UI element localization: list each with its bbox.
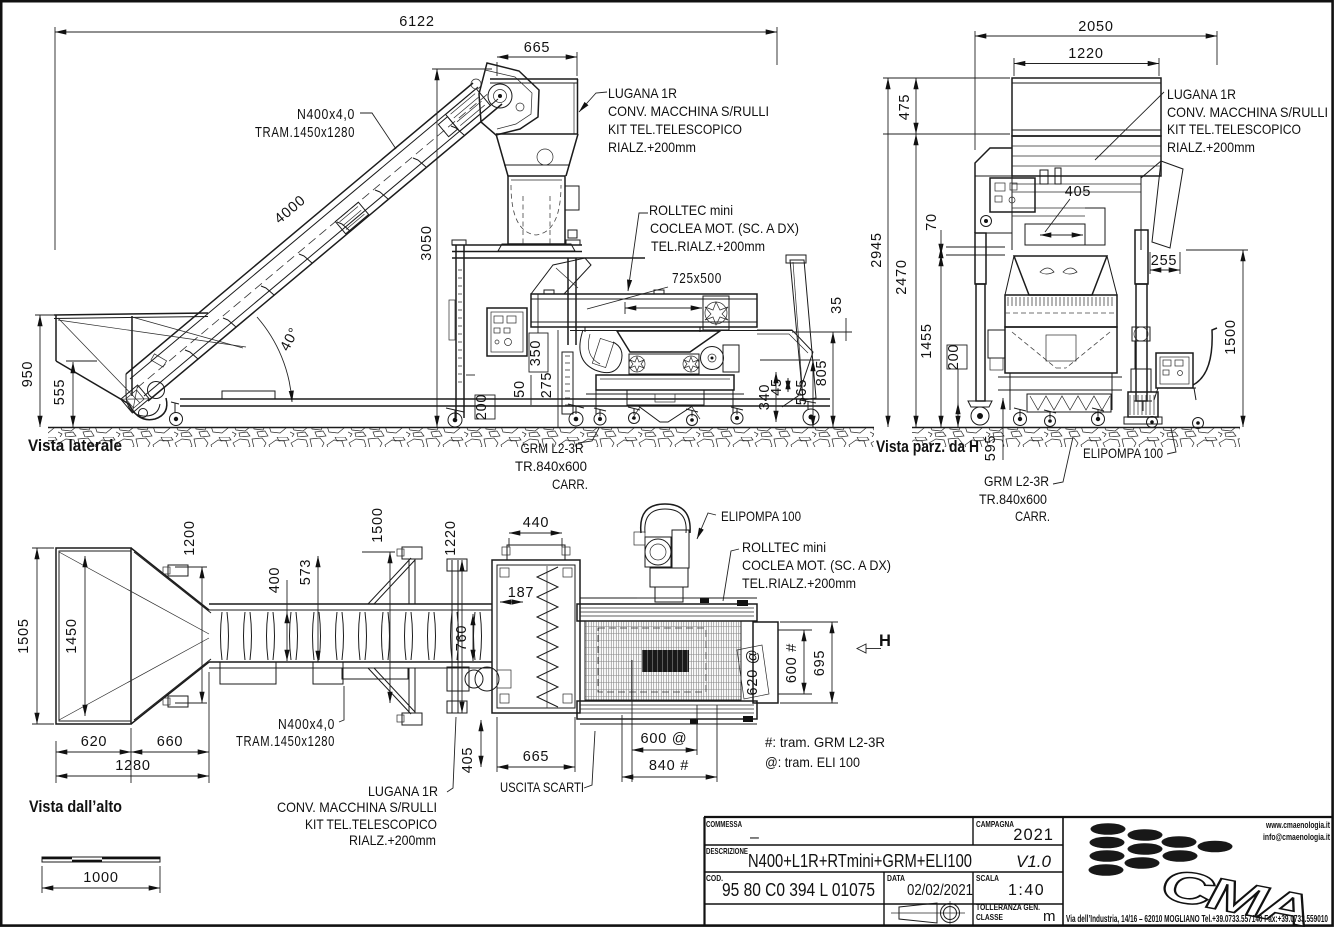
svg-text:RIALZ.+200mm: RIALZ.+200mm [349,832,436,848]
svg-text:TRAM.1450x1280: TRAM.1450x1280 [236,734,335,750]
svg-text:45: 45 [769,378,785,396]
svg-text:Vista parz. da H: Vista parz. da H [876,438,979,456]
svg-text:02/02/2021: 02/02/2021 [907,882,973,899]
svg-text:N400x4,0: N400x4,0 [278,717,335,733]
svg-text:620 @: 620 @ [745,649,761,696]
svg-text:200: 200 [946,344,962,371]
svg-text:187: 187 [508,585,535,601]
svg-text:TEL.RIALZ.+200mm: TEL.RIALZ.+200mm [651,238,765,254]
svg-text:info@cmaenologia.it: info@cmaenologia.it [1263,832,1330,842]
svg-text:KIT TEL.TELESCOPICO: KIT TEL.TELESCOPICO [608,121,742,137]
svg-text:COD.: COD. [706,873,723,883]
svg-text:665: 665 [524,40,551,56]
svg-text:V1.0: V1.0 [1016,852,1052,871]
svg-text:GRM L2-3R: GRM L2-3R [521,440,584,456]
svg-text:600 @: 600 @ [641,731,688,747]
svg-text:COCLEA MOT. (SC. A DX): COCLEA MOT. (SC. A DX) [742,557,891,573]
svg-text:TR.840x600: TR.840x600 [515,458,587,474]
svg-text:TOLLERANZA GEN.: TOLLERANZA GEN. [976,902,1040,912]
svg-text:660: 660 [157,734,184,750]
svg-text:35: 35 [829,296,845,314]
svg-text:2050: 2050 [1078,19,1113,35]
svg-text:N400+L1R+RTmini+GRM+ELI100: N400+L1R+RTmini+GRM+ELI100 [748,850,972,871]
svg-text:DATA: DATA [887,873,905,883]
svg-text:TR.840x600: TR.840x600 [979,491,1047,507]
svg-text:Via dell’Industria, 14/16 – 62: Via dell’Industria, 14/16 – 62010 MOGLIA… [1066,914,1328,925]
svg-text:RIALZ.+200mm: RIALZ.+200mm [1167,139,1255,155]
svg-text:200: 200 [474,394,490,421]
svg-text:760: 760 [454,625,470,652]
svg-text:6122: 6122 [399,14,434,30]
svg-text:950: 950 [20,361,36,388]
svg-text:3050: 3050 [419,225,435,260]
svg-text:275: 275 [539,372,555,399]
svg-text:805: 805 [814,360,830,387]
svg-text:TEL.RIALZ.+200mm: TEL.RIALZ.+200mm [742,575,856,591]
svg-text:LUGANA 1R: LUGANA 1R [1167,86,1236,102]
svg-text:CONV. MACCHINA S/RULLI: CONV. MACCHINA S/RULLI [1167,104,1328,120]
svg-text:KIT TEL.TELESCOPICO: KIT TEL.TELESCOPICO [1167,121,1301,137]
svg-text:ROLLTEC mini: ROLLTEC mini [742,539,826,555]
svg-text:1:40: 1:40 [1008,882,1045,899]
svg-text:725x500: 725x500 [672,271,722,287]
svg-text:595: 595 [983,435,999,462]
svg-text:2021: 2021 [1013,826,1054,844]
svg-text:600 #: 600 # [784,643,800,683]
svg-text:@: tram. ELI 100: @: tram. ELI 100 [765,754,860,770]
svg-text:#: tram. GRM L2-3R: #: tram. GRM L2-3R [765,734,885,750]
svg-text:Vista laterale: Vista laterale [28,437,122,455]
svg-text:ROLLTEC mini: ROLLTEC mini [649,202,733,218]
svg-text:405: 405 [1065,184,1092,200]
svg-text:95 80 C0 394 L 01075: 95 80 C0 394 L 01075 [722,880,875,900]
svg-text:840 #: 840 # [649,758,689,774]
svg-text:440: 440 [523,515,550,531]
svg-text:475: 475 [897,94,913,121]
svg-text:DESCRIZIONE: DESCRIZIONE [706,846,748,856]
svg-text:1450: 1450 [64,618,80,653]
svg-text:1280: 1280 [115,758,150,774]
svg-text:CLASSE: CLASSE [976,912,1003,922]
svg-text:573: 573 [298,559,314,586]
svg-text:555: 555 [52,379,68,406]
svg-text:m: m [1043,908,1056,925]
svg-text:1505: 1505 [16,618,32,653]
svg-text:350: 350 [528,340,544,367]
svg-text:50: 50 [512,380,528,398]
svg-text:CONV. MACCHINA S/RULLI: CONV. MACCHINA S/RULLI [277,799,437,815]
svg-text:1455: 1455 [919,323,935,358]
svg-text:255: 255 [1151,253,1178,269]
svg-text:1220: 1220 [443,520,459,555]
svg-text:LUGANA 1R: LUGANA 1R [368,783,438,799]
svg-text:405: 405 [460,747,476,774]
svg-text:GRM L2-3R: GRM L2-3R [984,473,1049,489]
svg-text:www.cmaenologia.it: www.cmaenologia.it [1265,820,1330,830]
svg-text:2470: 2470 [894,259,910,294]
svg-text:400: 400 [267,567,283,594]
svg-text:CARR.: CARR. [552,476,588,492]
svg-text:RIALZ.+200mm: RIALZ.+200mm [608,139,696,155]
svg-text:SCALA: SCALA [976,873,999,883]
svg-text:N400x4,0: N400x4,0 [297,107,355,123]
svg-text:1000: 1000 [83,870,118,886]
svg-text:1500: 1500 [370,507,386,542]
svg-text:KIT TEL.TELESCOPICO: KIT TEL.TELESCOPICO [305,816,437,832]
svg-text:1220: 1220 [1068,46,1103,62]
svg-text:H: H [879,632,891,650]
svg-text:620: 620 [81,734,108,750]
svg-text:CARR.: CARR. [1015,508,1050,524]
svg-text:COMMESSA: COMMESSA [706,819,742,829]
svg-text:1500: 1500 [1223,319,1239,354]
svg-text:665: 665 [523,749,550,765]
svg-text:695: 695 [812,650,828,677]
svg-text:TRAM.1450x1280: TRAM.1450x1280 [255,125,355,141]
svg-text:CONV. MACCHINA S/RULLI: CONV. MACCHINA S/RULLI [608,103,769,119]
svg-text:565: 565 [794,379,810,406]
svg-text:COCLEA MOT. (SC. A DX): COCLEA MOT. (SC. A DX) [650,220,799,236]
svg-text:LUGANA 1R: LUGANA 1R [608,85,677,101]
svg-text:–: – [750,829,759,846]
svg-text:CAMPAGNA: CAMPAGNA [976,819,1014,829]
svg-text:Vista dall’alto: Vista dall’alto [29,798,122,816]
svg-text:70: 70 [924,213,940,231]
svg-text:ELIPOMPA 100: ELIPOMPA 100 [1083,445,1163,461]
svg-text:USCITA SCARTI: USCITA SCARTI [500,779,584,795]
svg-text:1200: 1200 [182,520,198,555]
svg-text:2945: 2945 [869,232,885,267]
svg-text:ELIPOMPA 100: ELIPOMPA 100 [721,508,801,524]
